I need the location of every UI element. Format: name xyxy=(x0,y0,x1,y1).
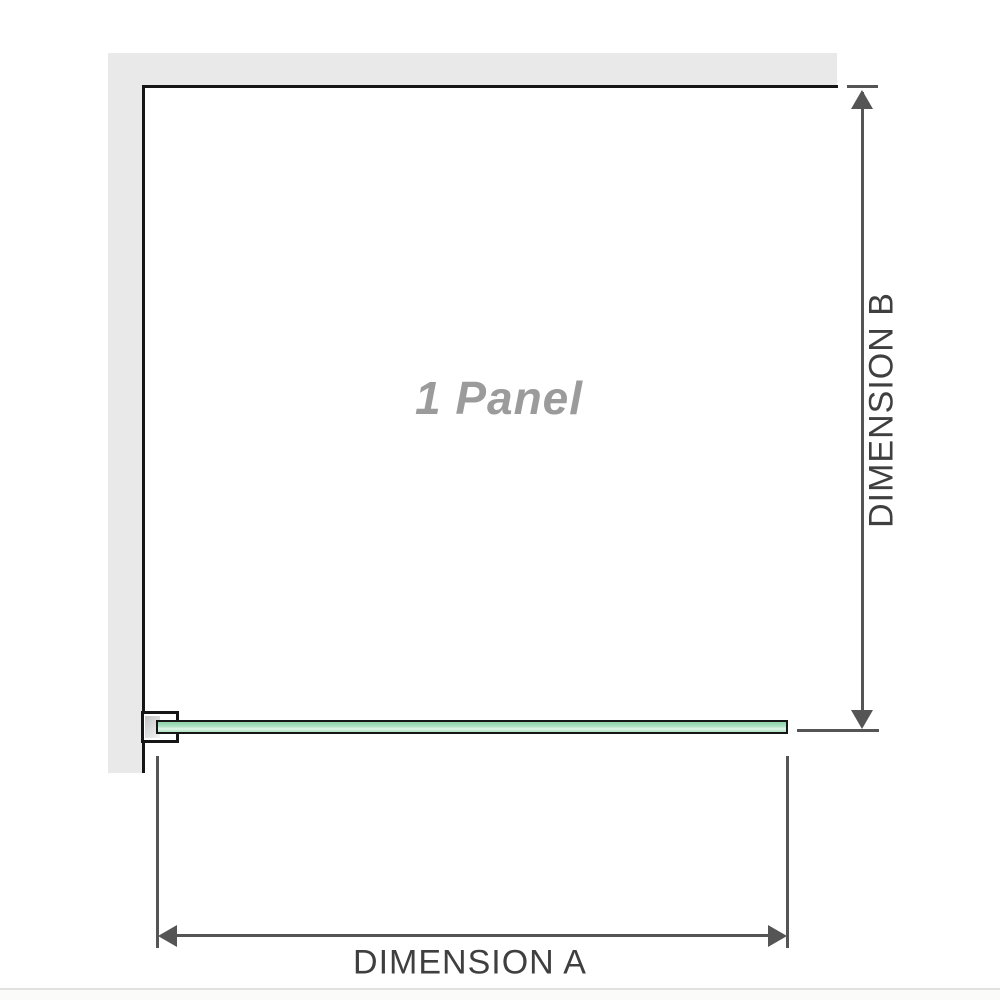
bottom-page-strip xyxy=(0,990,1000,1000)
arrowhead-up-icon xyxy=(851,90,873,109)
arrowhead-left-icon xyxy=(158,925,177,947)
dimension-a-line xyxy=(162,934,783,937)
dimension-diagram-canvas: 1 Panel DIMENSION B DIMENSION A xyxy=(0,0,1000,1000)
dimension-b-bottom-tick xyxy=(797,729,879,732)
arrowhead-down-icon xyxy=(851,710,873,729)
wall-inner-edge-top-line xyxy=(142,85,838,88)
dimension-a-label: DIMENSION A xyxy=(353,944,587,983)
dimension-a-right-extension-line xyxy=(786,756,789,948)
panel-count-label: 1 Panel xyxy=(415,371,583,425)
wall-inner-edge-left-line xyxy=(142,85,145,773)
dimension-b-top-tick xyxy=(847,85,878,88)
wall-left xyxy=(108,53,143,773)
wall-top xyxy=(108,53,837,87)
glass-panel xyxy=(156,720,788,734)
arrowhead-right-icon xyxy=(768,925,787,947)
dimension-b-label: DIMENSION B xyxy=(863,292,902,528)
dimension-a-left-extension-line xyxy=(156,756,159,948)
